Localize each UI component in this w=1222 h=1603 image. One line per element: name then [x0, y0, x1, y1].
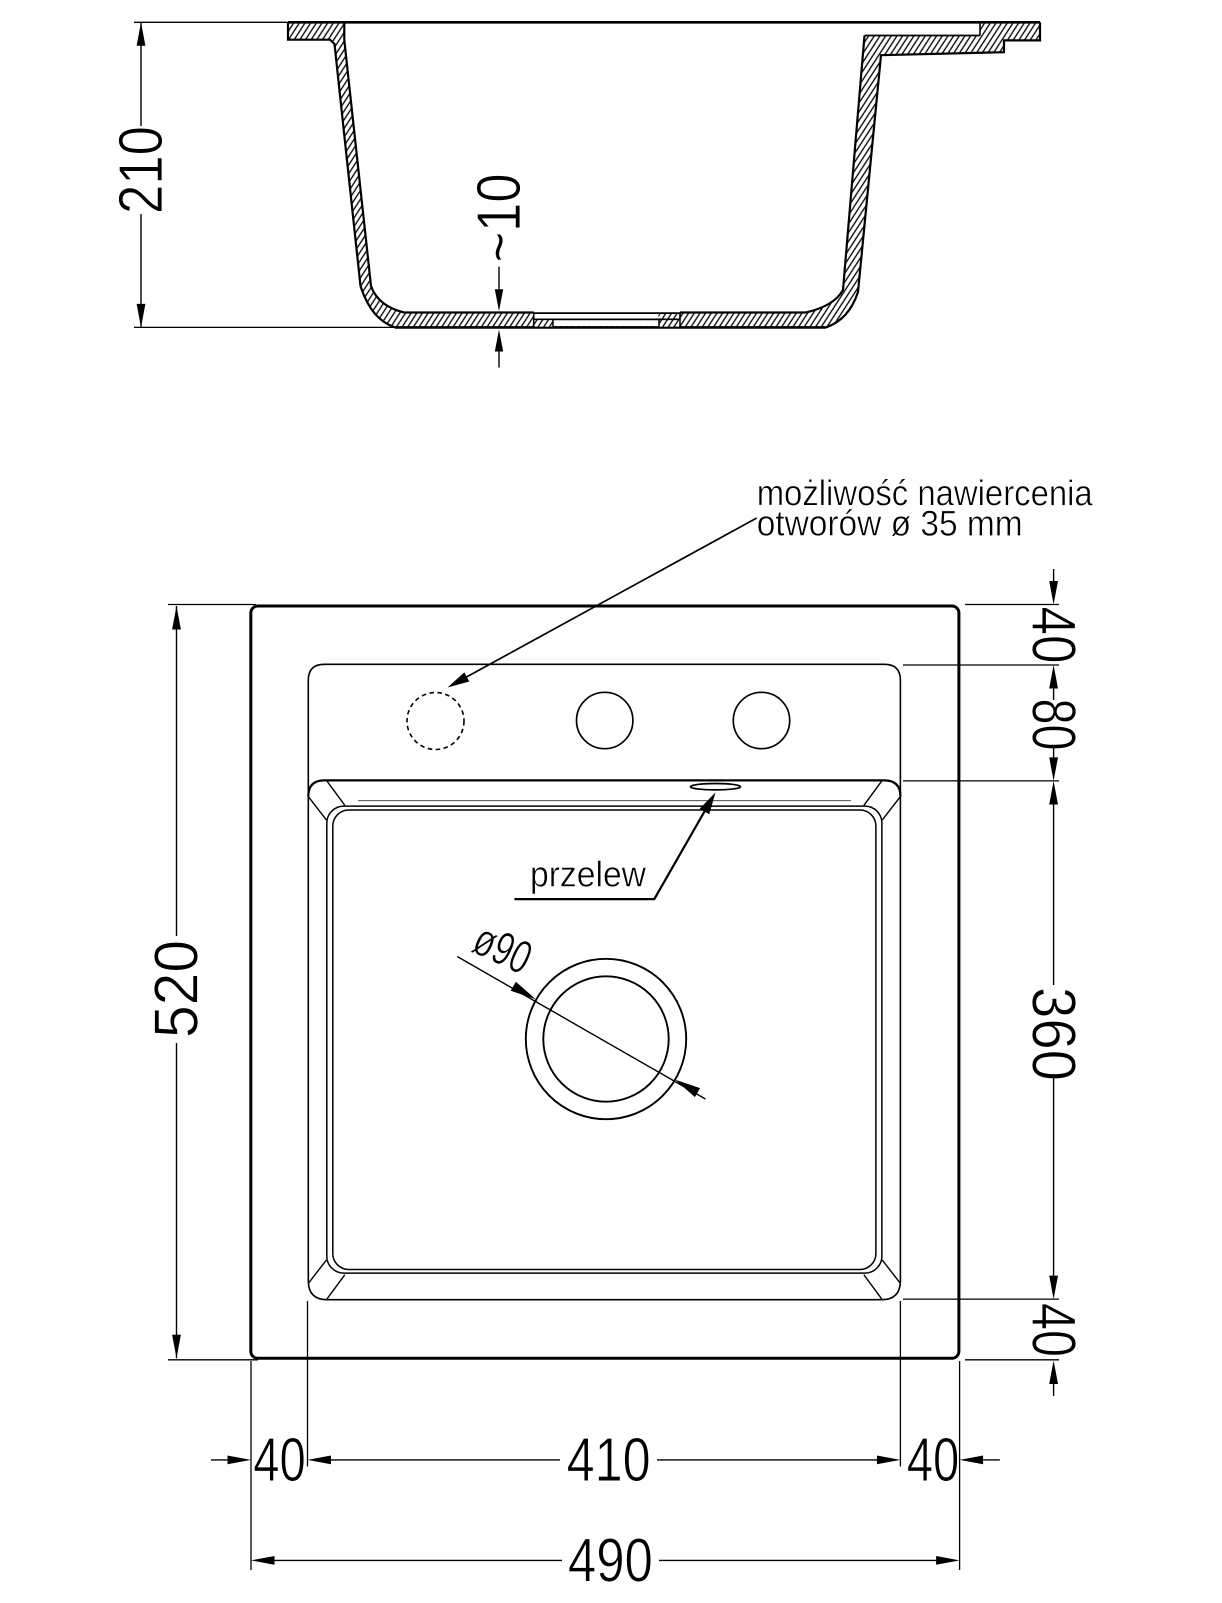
- svg-text:40: 40: [907, 1426, 960, 1495]
- svg-text:40: 40: [253, 1426, 306, 1495]
- svg-text:otworów ø 35 mm: otworów ø 35 mm: [757, 503, 1023, 544]
- svg-text:410: 410: [567, 1426, 651, 1495]
- svg-text:40: 40: [1019, 607, 1088, 664]
- svg-text:~10: ~10: [465, 174, 534, 263]
- svg-text:40: 40: [1019, 1303, 1088, 1357]
- svg-text:360: 360: [1019, 987, 1088, 1081]
- svg-text:490: 490: [568, 1526, 653, 1595]
- svg-text:210: 210: [107, 126, 176, 214]
- svg-text:przelew: przelew: [530, 854, 647, 895]
- svg-text:80: 80: [1019, 699, 1088, 751]
- svg-text:520: 520: [143, 940, 212, 1038]
